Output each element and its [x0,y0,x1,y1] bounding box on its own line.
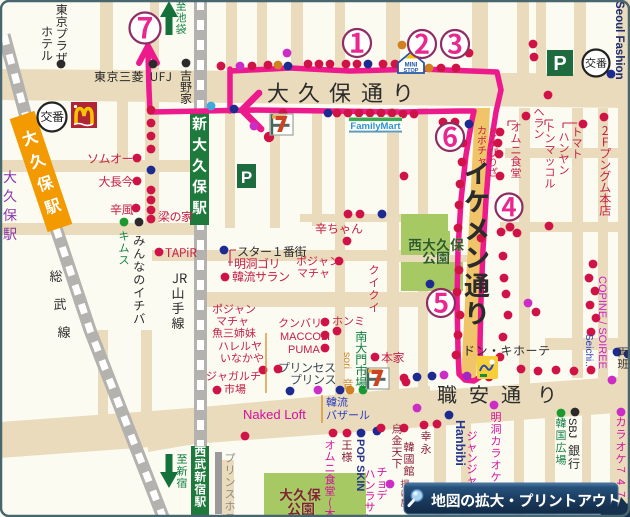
svg-text:COPINE / SOIREE: COPINE / SOIREE [596,276,608,369]
svg-text:Naked Loft: Naked Loft [243,407,306,422]
svg-text:FamilyMart: FamilyMart [350,121,401,132]
svg-text:Seichi..: Seichi.. [583,334,594,367]
svg-text:Seoul Fashion: Seoul Fashion [613,1,625,80]
svg-text:P: P [241,168,252,187]
svg-text:sori: sori [341,352,353,369]
svg-text:P: P [553,53,566,75]
svg-text:MACCOLI: MACCOLI [280,331,330,343]
svg-text:SBJ: SBJ [566,418,578,438]
svg-text:Hanbibi: Hanbibi [453,420,467,466]
svg-text:PUMA: PUMA [288,344,320,356]
svg-text:POP SKIN: POP SKIN [354,439,366,491]
svg-text:STOP: STOP [404,68,419,74]
